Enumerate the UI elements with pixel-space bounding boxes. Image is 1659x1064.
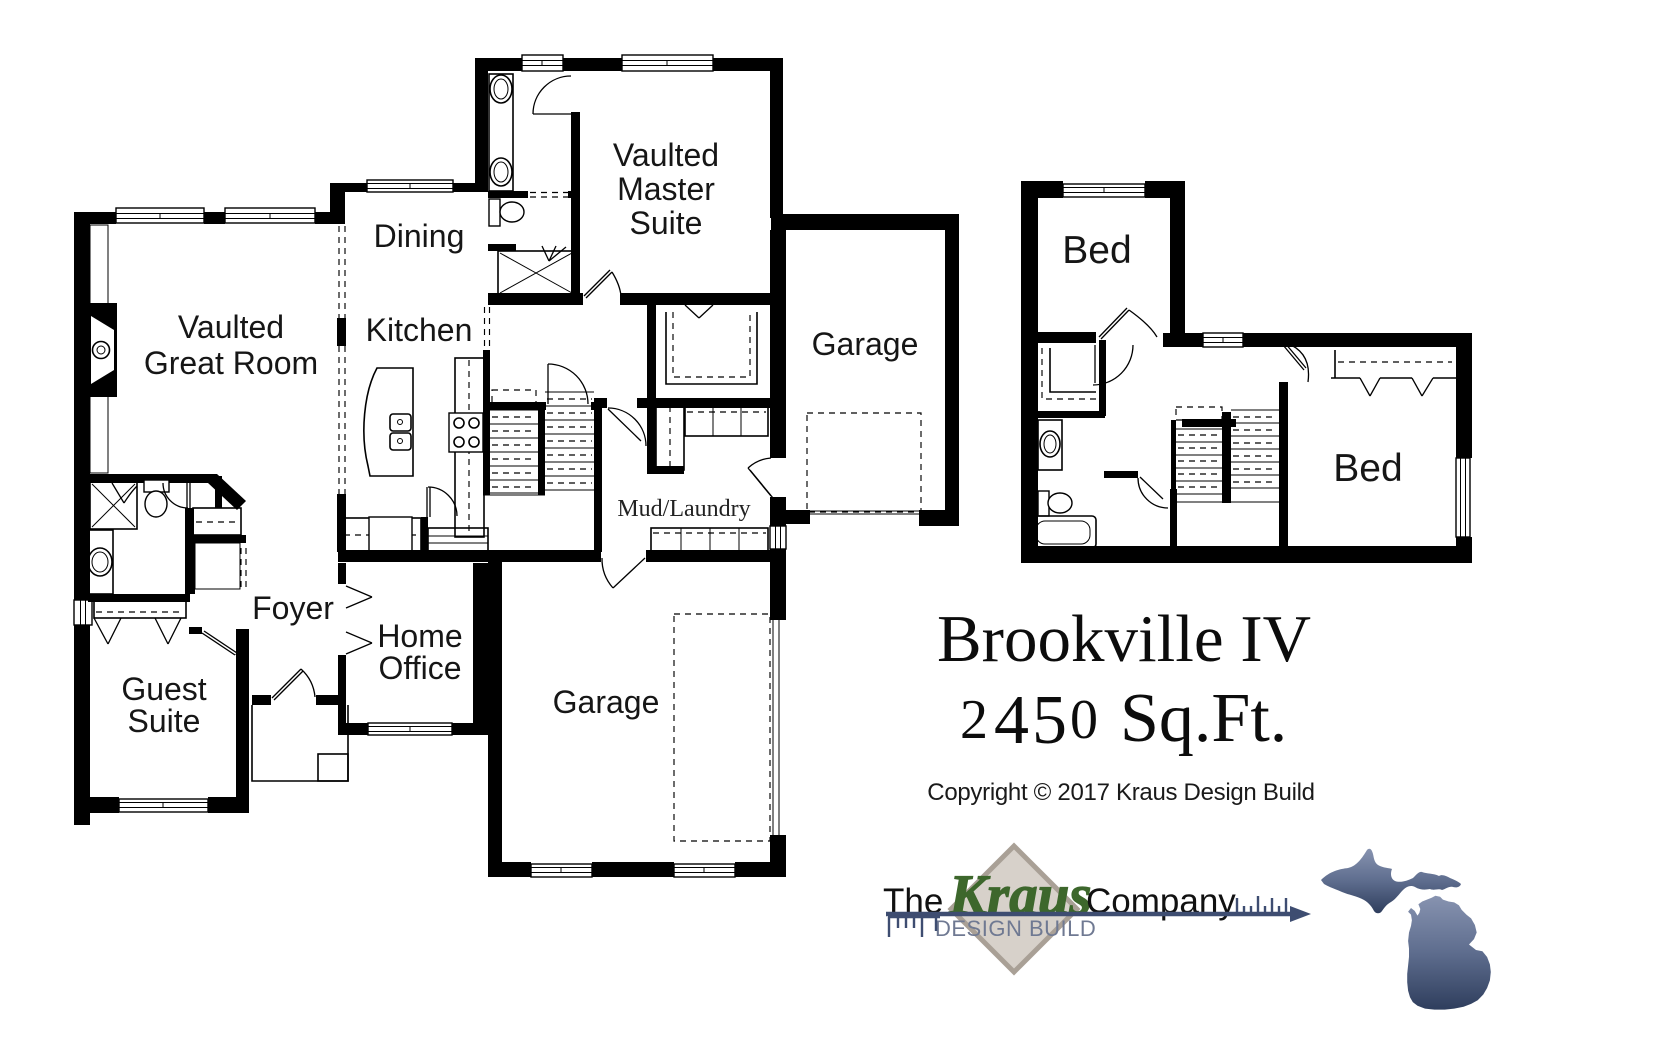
svg-text:Foyer: Foyer bbox=[252, 590, 334, 626]
svg-text:DESIGN BUILD: DESIGN BUILD bbox=[935, 916, 1096, 941]
svg-text:Bed: Bed bbox=[1333, 447, 1402, 490]
svg-text:4: 4 bbox=[994, 682, 1029, 759]
svg-text:0: 0 bbox=[1070, 689, 1098, 751]
svg-text:Dining: Dining bbox=[374, 218, 465, 254]
svg-text:Master: Master bbox=[617, 171, 715, 207]
svg-text:Suite: Suite bbox=[128, 703, 201, 739]
svg-text:5: 5 bbox=[1032, 682, 1067, 759]
svg-text:Garage: Garage bbox=[812, 326, 919, 362]
svg-text:Brookville IV: Brookville IV bbox=[937, 602, 1311, 676]
svg-text:Sq.Ft.: Sq.Ft. bbox=[1120, 680, 1287, 757]
svg-text:Garage: Garage bbox=[553, 684, 660, 720]
svg-text:Great Room: Great Room bbox=[144, 345, 318, 381]
svg-text:Suite: Suite bbox=[630, 205, 703, 241]
svg-text:Office: Office bbox=[379, 650, 462, 686]
svg-text:Home: Home bbox=[377, 618, 462, 654]
svg-text:Vaulted: Vaulted bbox=[178, 309, 284, 345]
svg-text:Copyright © 2017 Kraus Design: Copyright © 2017 Kraus Design Build bbox=[927, 779, 1314, 806]
svg-text:Bed: Bed bbox=[1062, 229, 1131, 272]
svg-text:Vaulted: Vaulted bbox=[613, 137, 719, 173]
svg-text:Guest: Guest bbox=[121, 671, 206, 707]
svg-text:Kitchen: Kitchen bbox=[366, 312, 473, 348]
svg-text:2: 2 bbox=[960, 689, 988, 751]
svg-text:Mud/Laundry: Mud/Laundry bbox=[617, 496, 750, 522]
